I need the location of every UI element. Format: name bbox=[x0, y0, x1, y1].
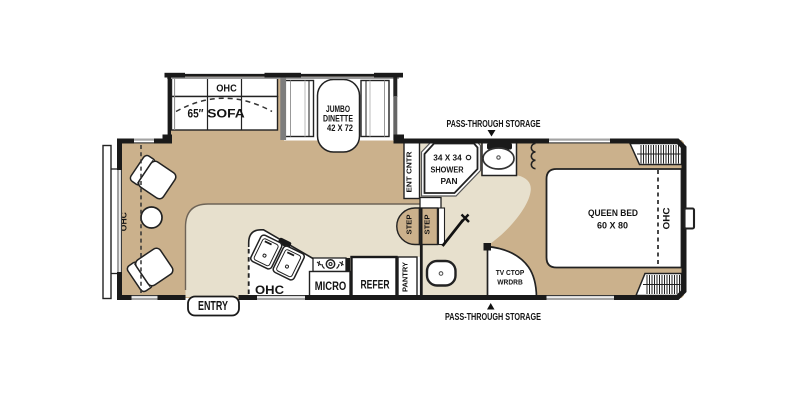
svg-text:60 X 80: 60 X 80 bbox=[597, 221, 628, 232]
svg-text:65″: 65″ bbox=[188, 109, 204, 121]
svg-text:PASS-THROUGH STORAGE: PASS-THROUGH STORAGE bbox=[447, 118, 541, 130]
svg-text:REFER: REFER bbox=[361, 280, 391, 292]
svg-text:PASS-THROUGH STORAGE: PASS-THROUGH STORAGE bbox=[445, 311, 541, 323]
svg-text:ENTRY: ENTRY bbox=[198, 299, 228, 313]
svg-text:TV CTOP: TV CTOP bbox=[496, 268, 525, 277]
svg-text:ENT CNTR: ENT CNTR bbox=[407, 152, 414, 193]
svg-text:PANTRY: PANTRY bbox=[401, 262, 410, 292]
svg-text:SHOWER: SHOWER bbox=[431, 166, 464, 175]
svg-text:STEP: STEP bbox=[405, 215, 414, 235]
svg-text:JUMBO: JUMBO bbox=[326, 104, 350, 114]
svg-text:WRDRB: WRDRB bbox=[497, 278, 523, 287]
svg-text:MICRO: MICRO bbox=[315, 281, 347, 293]
svg-text:PAN: PAN bbox=[441, 177, 458, 186]
svg-text:QUEEN BED: QUEEN BED bbox=[588, 208, 638, 219]
svg-text:OHC: OHC bbox=[216, 84, 237, 95]
svg-text:SOFA: SOFA bbox=[207, 109, 245, 121]
svg-text:OHC: OHC bbox=[662, 207, 672, 230]
svg-text:42 X 72: 42 X 72 bbox=[327, 123, 353, 133]
svg-text:STEP: STEP bbox=[423, 215, 432, 235]
svg-text:DINETTE: DINETTE bbox=[323, 114, 353, 124]
svg-text:34 X 34: 34 X 34 bbox=[433, 154, 462, 163]
